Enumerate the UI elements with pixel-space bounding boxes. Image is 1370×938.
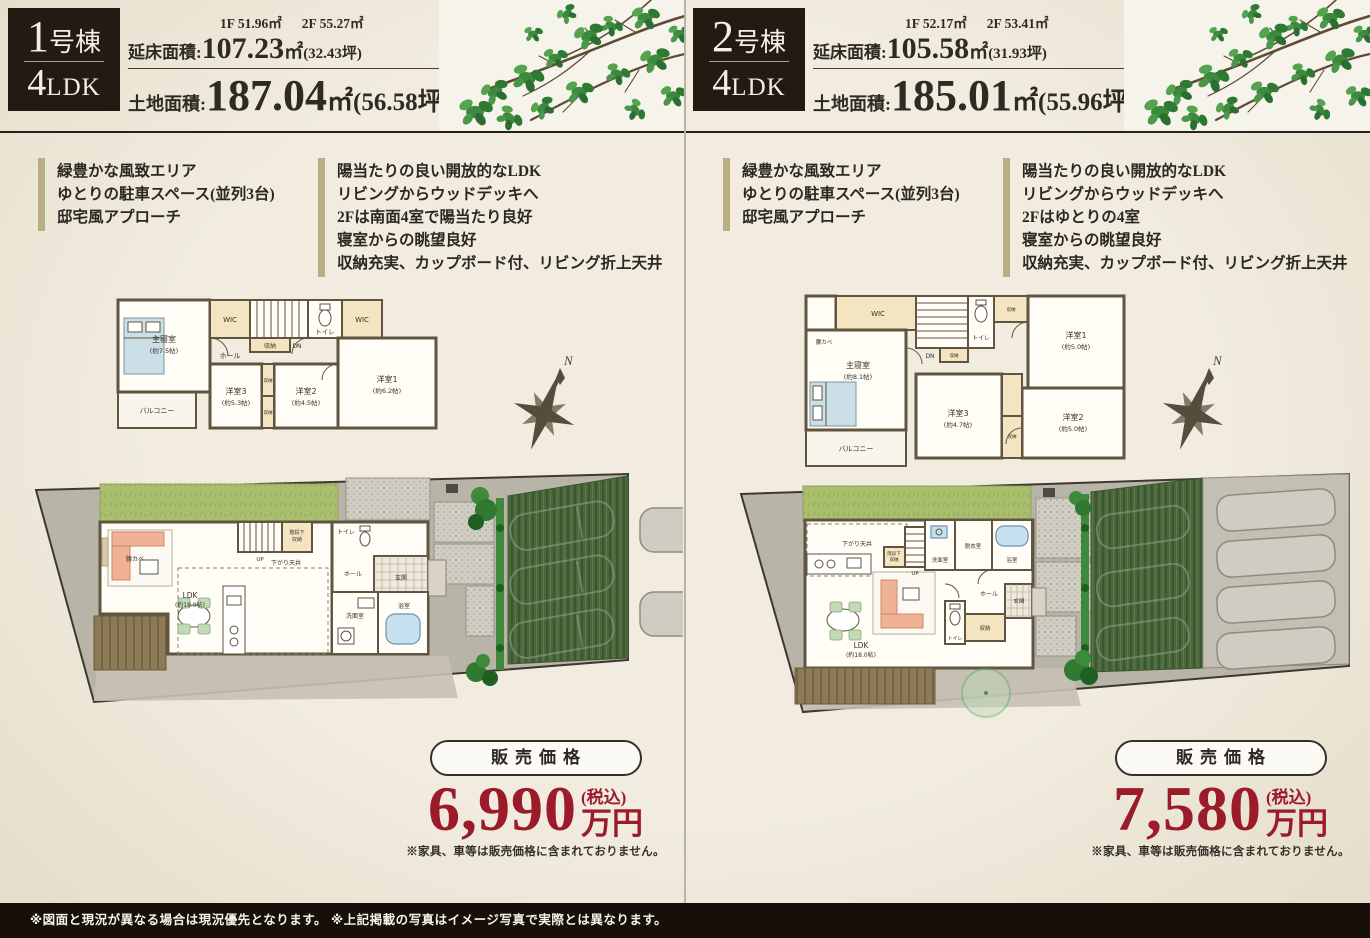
leaf-photo [1124, 0, 1370, 131]
price-block: 販売価格 6,990 (税込) 万円 ※家具、車等は販売価格に含まれておりません… [388, 740, 683, 859]
feature-item: 2Fは南面4室で陽当たり良好 [337, 206, 663, 229]
feature-item: ゆとりの駐車スペース(並列3台) [742, 183, 960, 206]
room-label: WIC [871, 310, 885, 318]
feature-list-environment: 緑豊かな風致エリア ゆとりの駐車スペース(並列3台) 邸宅風アプローチ [38, 158, 275, 231]
room-label: 脱衣室 [965, 542, 982, 550]
total-area-value: 105.58 [887, 32, 970, 65]
room-label: 洋室2 [1062, 412, 1083, 422]
room-label: 玄関 [1013, 597, 1025, 605]
bathtub-icon [996, 526, 1028, 546]
plan-type: LDK [731, 74, 785, 101]
sofa-icon [873, 572, 935, 634]
plan-rooms: 4 [27, 62, 46, 104]
room-label: 腰カベ [126, 556, 144, 563]
toilet-icon [950, 604, 960, 625]
room-label: 洋室1 [1065, 330, 1086, 340]
room-size: (約4.7帖) [944, 420, 972, 429]
room-size: (約18.9帖) [175, 601, 205, 609]
room-label: 下がり天井 [271, 559, 301, 567]
total-area-tsubo: (32.43坪) [303, 46, 362, 62]
toilet-icon [975, 300, 987, 322]
room-label: 腰カベ [816, 339, 833, 346]
room-label: DN [925, 353, 934, 360]
price-block: 販売価格 7,580 (税込) 万円 ※家具、車等は販売価格に含まれておりません… [1073, 740, 1368, 859]
compass-icon: N [1147, 352, 1247, 467]
bathtub-icon [386, 614, 420, 644]
unit-number: 2 [712, 12, 734, 61]
land-area-value: 187.04 [206, 71, 327, 120]
room-size: (約8.1帖) [844, 372, 872, 381]
room-label: WIC [223, 316, 237, 324]
total-area-unit: ㎡ [284, 42, 303, 63]
room-label: 主寝室 [846, 360, 870, 370]
room-label: 収納 [890, 556, 899, 563]
feature-item: 緑豊かな風致エリア [742, 160, 960, 183]
unit-badge: 1号棟 4LDK [8, 8, 120, 111]
room-label: 主寝室 [152, 334, 176, 344]
room-label: ホール [980, 591, 998, 598]
room-label: 洋室1 [376, 374, 397, 384]
room-label: 収納 [264, 409, 273, 416]
room-size: (約18.0帖) [846, 651, 876, 659]
room-label: トイレ [947, 636, 962, 642]
room-label: 収納 [1008, 433, 1017, 440]
unit-number: 1 [27, 12, 49, 61]
site-plan-1f: 腰カベ 下がり天井 UP 階段下 収納 LDK (約18.9帖) トイレ ホール… [28, 468, 683, 715]
room-label: 階段下 [289, 529, 304, 536]
unit-badge: 2号棟 4LDK [693, 8, 805, 111]
total-area-tsubo: (31.93坪) [988, 46, 1047, 62]
tree-icon [962, 669, 1010, 717]
floor1-area: 1F 51.96㎡ [220, 12, 282, 32]
compass-icon: N [498, 352, 598, 467]
price-value: 6,990 [428, 780, 577, 838]
room-label: 収納 [1007, 306, 1016, 313]
area-divider [813, 68, 1128, 69]
feature-item: 陽当たりの良い開放的なLDK [1022, 160, 1348, 183]
room-label: 浴室 [398, 602, 410, 610]
room-label: トイレ [315, 328, 335, 336]
land-area-unit: ㎡ [327, 87, 353, 116]
room-label: ホール [220, 352, 241, 360]
sink-icon [931, 526, 947, 538]
leaf-photo [439, 0, 685, 131]
total-floor-area: 延床面積:105.58㎡(31.93坪) [813, 32, 1138, 66]
price-pill: 販売価格 [430, 740, 642, 776]
feature-item: 邸宅風アプローチ [742, 206, 960, 229]
room-label: 階段下 [887, 550, 901, 557]
land-area-label: 土地面積: [128, 94, 206, 114]
feature-item: 2Fはゆとりの4室 [1022, 206, 1348, 229]
neighbor-car [640, 508, 683, 636]
room-label: ホール [344, 571, 362, 578]
land-area-tsubo: (55.96坪) [1038, 89, 1136, 116]
room-label: 洗面室 [346, 612, 364, 620]
room-label: UP [256, 557, 264, 563]
feature-item: 収納充実、カップボード付、リビング折上天井 [337, 252, 663, 275]
floor-areas: 1F 52.17㎡ 2F 53.41㎡ [813, 12, 1138, 32]
unit-number-suffix: 号棟 [49, 28, 101, 57]
feature-list-plan: 陽当たりの良い開放的なLDK リビングからウッドデッキへ 2Fはゆとりの4室 寝… [1003, 158, 1348, 277]
unit-panel-1: 1号棟 4LDK 1F 51.96㎡ 2F 55.27㎡ 延床面積:107.23… [0, 0, 685, 938]
total-area-label: 延床面積: [128, 43, 202, 62]
compass-north-label: N [1212, 353, 1223, 368]
bed-icon [810, 382, 856, 426]
room-label: 洋室2 [295, 386, 316, 396]
room-label: 玄関 [395, 574, 407, 582]
feature-item: ゆとりの駐車スペース(並列3台) [57, 183, 275, 206]
room-label: 洋室3 [225, 386, 246, 396]
room-size: (約5.0帖) [1059, 424, 1087, 433]
feature-item: 陽当たりの良い開放的なLDK [337, 160, 663, 183]
floor1-area: 1F 52.17㎡ [905, 12, 967, 32]
bed-icon [124, 318, 164, 374]
compass-north-label: N [563, 353, 574, 368]
land-area-label: 土地面積: [813, 94, 891, 114]
room-label: 収納 [950, 352, 959, 359]
leaf-branch-illustration [1124, 0, 1370, 131]
room-label: UP [911, 571, 919, 577]
land-area: 土地面積:187.04㎡(56.58坪) [128, 70, 453, 121]
room-label: 収納 [979, 624, 991, 632]
feature-item: 緑豊かな風致エリア [57, 160, 275, 183]
room-size: (約6.2帖) [373, 386, 401, 395]
feature-list-environment: 緑豊かな風致エリア ゆとりの駐車スペース(並列3台) 邸宅風アプローチ [723, 158, 960, 231]
room-label: LDK [183, 591, 199, 600]
room-label: 下がり天井 [842, 540, 872, 548]
feature-item: 寝室からの眺望良好 [337, 229, 663, 252]
unit-number-suffix: 号棟 [734, 28, 786, 57]
total-area-unit: ㎡ [969, 42, 988, 63]
room-label: トイレ [972, 335, 990, 342]
panel-divider [684, 0, 686, 903]
floor-plan-2f: バルコニー [800, 288, 1130, 478]
room-size: (約5.3帖) [222, 398, 250, 407]
price-tax-note: (税込) [1266, 790, 1311, 805]
price-main: 6,990 (税込) 万円 [388, 780, 683, 838]
total-area-value: 107.23 [202, 32, 285, 65]
room-label: 洗面室 [932, 556, 949, 564]
toilet-icon [360, 526, 370, 546]
area-info: 1F 52.17㎡ 2F 53.41㎡ 延床面積:105.58㎡(31.93坪)… [813, 12, 1138, 121]
room-label: LDK [854, 641, 870, 650]
floor-plan-2f: バルコニー [112, 292, 442, 465]
header-rule [0, 131, 685, 133]
room-label: WIC [355, 316, 369, 324]
site-plan-1f: 下がり天井 階段下 収納 UP 洗面室 脱衣室 浴室 LDK (約18.0帖) … [731, 468, 1370, 725]
price-main: 7,580 (税込) 万円 [1073, 780, 1368, 838]
room-label-balcony: バルコニー [140, 407, 175, 415]
total-area-label: 延床面積: [813, 43, 887, 62]
leaf-branch-illustration [439, 0, 685, 131]
toilet-icon [319, 304, 331, 326]
land-area: 土地面積:185.01㎡(55.96坪) [813, 70, 1138, 121]
feature-item: 寝室からの眺望良好 [1022, 229, 1348, 252]
wood-deck [795, 668, 935, 704]
feature-item: 収納充実、カップボード付、リビング折上天井 [1022, 252, 1348, 275]
land-area-unit: ㎡ [1012, 87, 1038, 116]
plan-type: LDK [46, 74, 100, 101]
room-size: (約5.0帖) [1062, 342, 1090, 351]
price-unit: 万円 [1266, 810, 1328, 838]
room-label: 浴室 [1006, 556, 1018, 564]
room-label: DN [292, 343, 301, 350]
price-tax-note: (税込) [581, 790, 626, 805]
unit-panel-2: 2号棟 4LDK 1F 52.17㎡ 2F 53.41㎡ 延床面積:105.58… [685, 0, 1370, 938]
room-label: 収納 [292, 536, 302, 543]
price-unit: 万円 [581, 810, 643, 838]
price-note: ※家具、車等は販売価格に含まれておりません。 [1073, 843, 1368, 859]
header-rule [685, 131, 1370, 133]
room-label: 洋室3 [947, 408, 968, 418]
floor-areas: 1F 51.96㎡ 2F 55.27㎡ [128, 12, 453, 32]
footer-disclaimer: ※図面と現況が異なる場合は現況優先となります。 ※上記掲載の写真はイメージ写真で… [0, 903, 1370, 938]
wood-deck [94, 616, 166, 670]
feature-list-plan: 陽当たりの良い開放的なLDK リビングからウッドデッキへ 2Fは南面4室で陽当た… [318, 158, 663, 277]
area-info: 1F 51.96㎡ 2F 55.27㎡ 延床面積:107.23㎡(32.43坪)… [128, 12, 453, 121]
floor2-area: 2F 55.27㎡ [302, 12, 364, 32]
price-pill: 販売価格 [1115, 740, 1327, 776]
feature-item: リビングからウッドデッキへ [1022, 183, 1348, 206]
land-area-value: 185.01 [891, 71, 1012, 120]
room-label: 収納 [264, 342, 276, 350]
price-note: ※家具、車等は販売価格に含まれておりません。 [388, 843, 683, 859]
kitchen-icon [223, 586, 245, 654]
feature-item: リビングからウッドデッキへ [337, 183, 663, 206]
plan-rooms: 4 [712, 62, 731, 104]
feature-item: 邸宅風アプローチ [57, 206, 275, 229]
room-size: (約4.5帖) [292, 398, 320, 407]
flyer-canvas: 1号棟 4LDK 1F 51.96㎡ 2F 55.27㎡ 延床面積:107.23… [0, 0, 1370, 938]
total-floor-area: 延床面積:107.23㎡(32.43坪) [128, 32, 453, 66]
price-value: 7,580 [1113, 780, 1262, 838]
room-label-balcony: バルコニー [839, 445, 874, 453]
kitchen-icon [807, 554, 871, 574]
area-divider [128, 68, 443, 69]
room-size: (約7.5帖) [150, 346, 178, 355]
room-label: 収納 [264, 377, 273, 384]
room-label: トイレ [337, 529, 355, 536]
land-area-tsubo: (56.58坪) [353, 89, 451, 116]
floor2-area: 2F 53.41㎡ [987, 12, 1049, 32]
